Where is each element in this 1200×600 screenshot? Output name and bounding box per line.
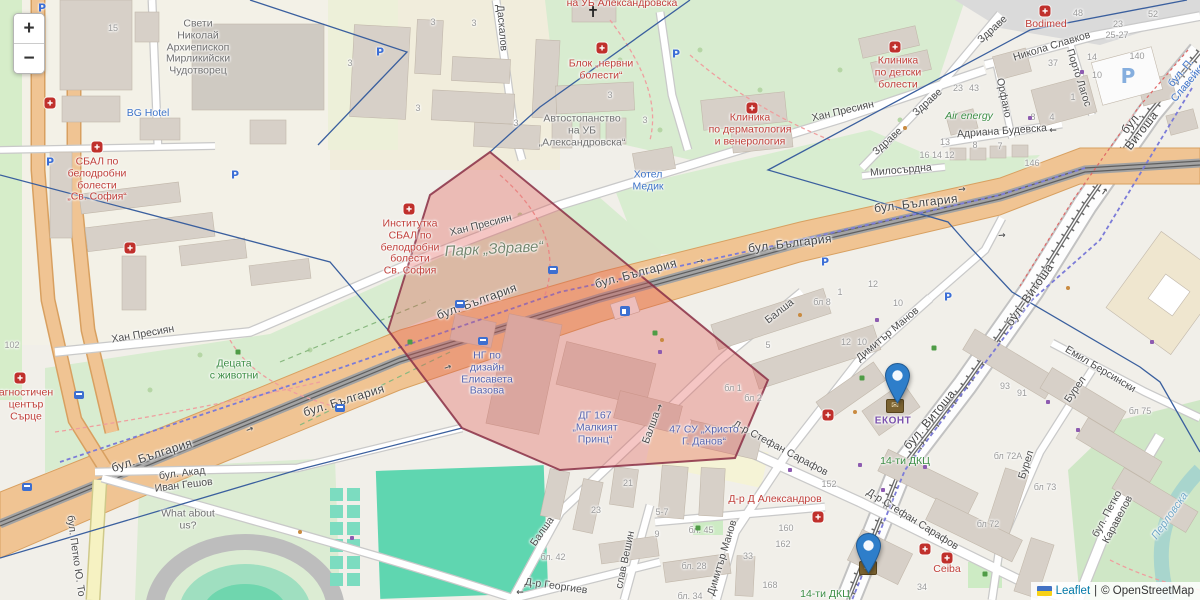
econt-office-marker[interactable]: [856, 533, 881, 574]
zoom-in-button[interactable]: +: [14, 14, 44, 44]
attribution-bar: Leaflet | © OpenStreetMap: [1031, 582, 1200, 600]
econt-office-marker[interactable]: [885, 363, 910, 404]
zoom-out-button[interactable]: −: [14, 44, 44, 73]
openstreetmap-link[interactable]: © OpenStreetMap: [1101, 585, 1194, 597]
leaflet-link[interactable]: Leaflet: [1056, 585, 1091, 597]
attribution-divider: |: [1094, 585, 1097, 597]
ukraine-flag-icon: [1037, 586, 1052, 596]
map-canvas[interactable]: Хан ПресиянХан ПресиянХан ПресиянДаскало…: [0, 0, 1200, 600]
zoom-control: + −: [13, 13, 45, 74]
base-map: [0, 0, 1200, 600]
